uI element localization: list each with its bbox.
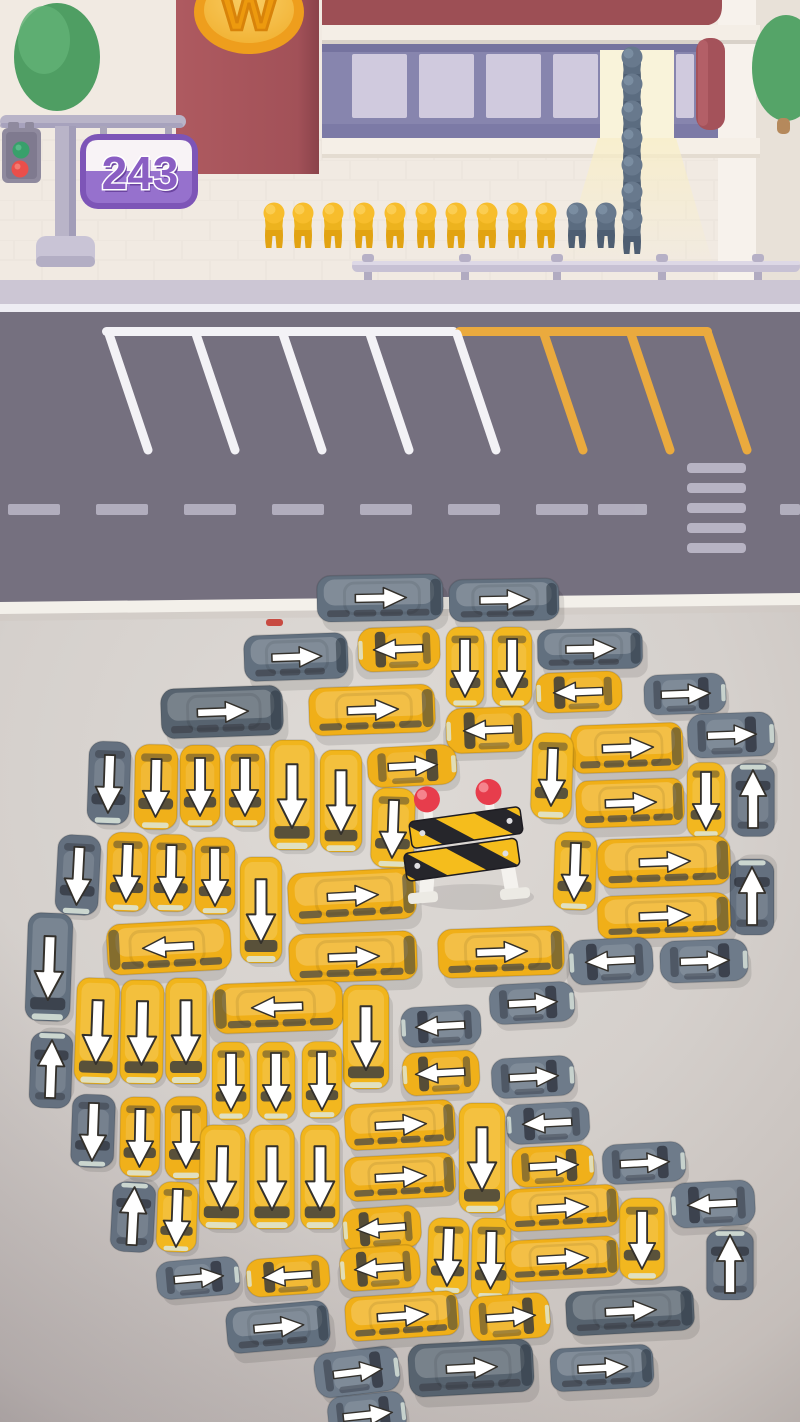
svg-text:W: W: [221, 0, 277, 41]
svg-text:243: 243: [102, 147, 179, 199]
